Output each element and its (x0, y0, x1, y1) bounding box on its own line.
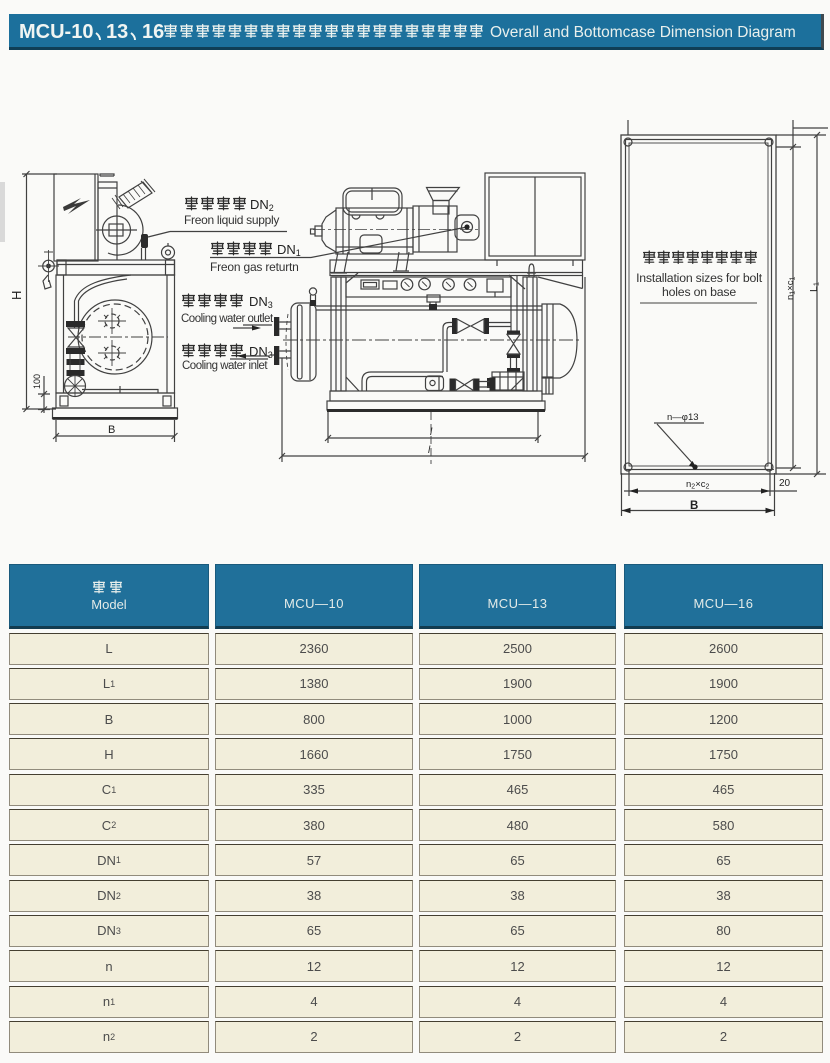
svg-text:Overall and Bottomcase Dimensi: Overall and Bottomcase Dimension Diagram (490, 24, 796, 41)
svg-text:DN3: DN3 (249, 294, 273, 310)
svg-text:Installation sizes for bolt: Installation sizes for bolt (636, 271, 763, 285)
svg-text:n1×c1: n1×c1 (785, 276, 797, 300)
svg-text:B: B (108, 424, 115, 436)
svg-text:B: B (690, 500, 698, 512)
svg-text:13: 13 (106, 21, 128, 43)
svg-text:n—φ13: n—φ13 (667, 412, 699, 423)
svg-text:Freon gas returtn: Freon gas returtn (210, 260, 299, 274)
svg-text:100: 100 (32, 374, 42, 389)
svg-text:MCU-10: MCU-10 (19, 21, 93, 43)
svg-text:H: H (9, 291, 24, 300)
svg-text:DN3: DN3 (249, 344, 273, 360)
svg-text:L1: L1 (808, 282, 821, 292)
svg-text:Freon liquid supply: Freon liquid supply (184, 213, 279, 227)
svg-text:20: 20 (779, 478, 791, 489)
svg-text:DN2: DN2 (250, 197, 274, 213)
svg-text:l: l (430, 427, 433, 438)
svg-text:DN1: DN1 (277, 242, 301, 258)
svg-text:holes on base: holes on base (662, 285, 736, 299)
svg-text:n2×c2: n2×c2 (686, 479, 710, 491)
svg-text:Cooling water outlet: Cooling water outlet (181, 313, 274, 325)
svg-text:16: 16 (142, 21, 164, 43)
svg-text:Cooling water inlet: Cooling water inlet (182, 360, 268, 372)
